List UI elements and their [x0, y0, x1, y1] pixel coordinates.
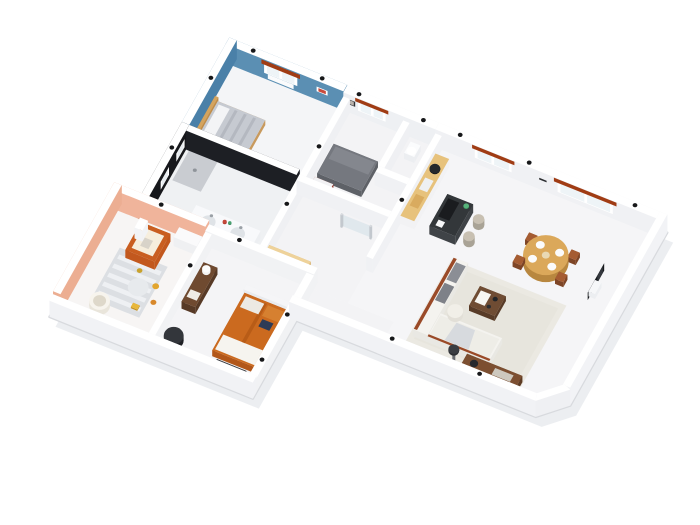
- toy-ball: [152, 283, 159, 289]
- dining-plate: [536, 241, 545, 249]
- vanity-faucet-right: [239, 226, 242, 229]
- window-living-mullion: [584, 193, 587, 203]
- bar-stool: [463, 231, 475, 247]
- bar-stool: [473, 214, 485, 230]
- toy-ball: [137, 268, 143, 273]
- wall-fixture: [477, 372, 482, 376]
- sideboard-deco: [470, 360, 478, 367]
- wall-fixture: [188, 263, 193, 267]
- wall-fixture: [285, 312, 290, 316]
- vanity-faucet-left: [210, 214, 213, 217]
- wall-fixture: [458, 133, 463, 137]
- floor-plan-3d-render: [0, 0, 700, 525]
- floor-plan-canvas: [0, 0, 700, 525]
- wall-fixture: [317, 144, 322, 148]
- wall-fixture: [237, 238, 242, 242]
- floor-lamp-shade: [448, 344, 459, 355]
- wc-toilet-seat: [407, 147, 417, 155]
- wall-fixture: [527, 161, 532, 165]
- toy-ball: [150, 300, 156, 305]
- wall-fixture: [159, 203, 164, 207]
- wall-fixture: [284, 202, 289, 206]
- coffee-table-item: [487, 305, 491, 309]
- dining-plate: [547, 263, 556, 271]
- window-blue-bedroom-mullion: [279, 71, 282, 80]
- nursery-floor-doodle: [128, 278, 149, 296]
- dining-plate: [528, 255, 537, 263]
- glass-partition-post: [340, 213, 343, 228]
- glass-partition-post: [369, 225, 372, 240]
- wall-fixture: [399, 198, 404, 202]
- wall-fixture: [209, 76, 214, 80]
- wall-fixture: [357, 92, 362, 96]
- shower-drain: [193, 169, 197, 172]
- window-office-mullion: [371, 107, 374, 116]
- dining-plate: [555, 249, 564, 257]
- kitchen-counter-bowl: [430, 164, 441, 174]
- coffee-table-item: [493, 297, 498, 302]
- wall-fixture: [390, 337, 395, 341]
- window-kitchen-mullion: [491, 156, 494, 165]
- wall-fixture: [320, 76, 325, 80]
- wall-fixture: [260, 358, 265, 362]
- dining-centerpiece: [542, 252, 550, 259]
- nursery-bassinet-inner: [93, 295, 106, 306]
- wall-fixture: [421, 118, 426, 122]
- vanity-toiletry-red: [223, 220, 227, 224]
- dresser-lamp: [202, 265, 210, 275]
- wall-fixture: [633, 203, 638, 207]
- living-pouf: [447, 304, 463, 322]
- wall-fixture: [251, 49, 256, 53]
- wall-fixture: [169, 145, 174, 149]
- vanity-toiletry-green: [228, 221, 231, 225]
- island-green-cup: [463, 203, 469, 209]
